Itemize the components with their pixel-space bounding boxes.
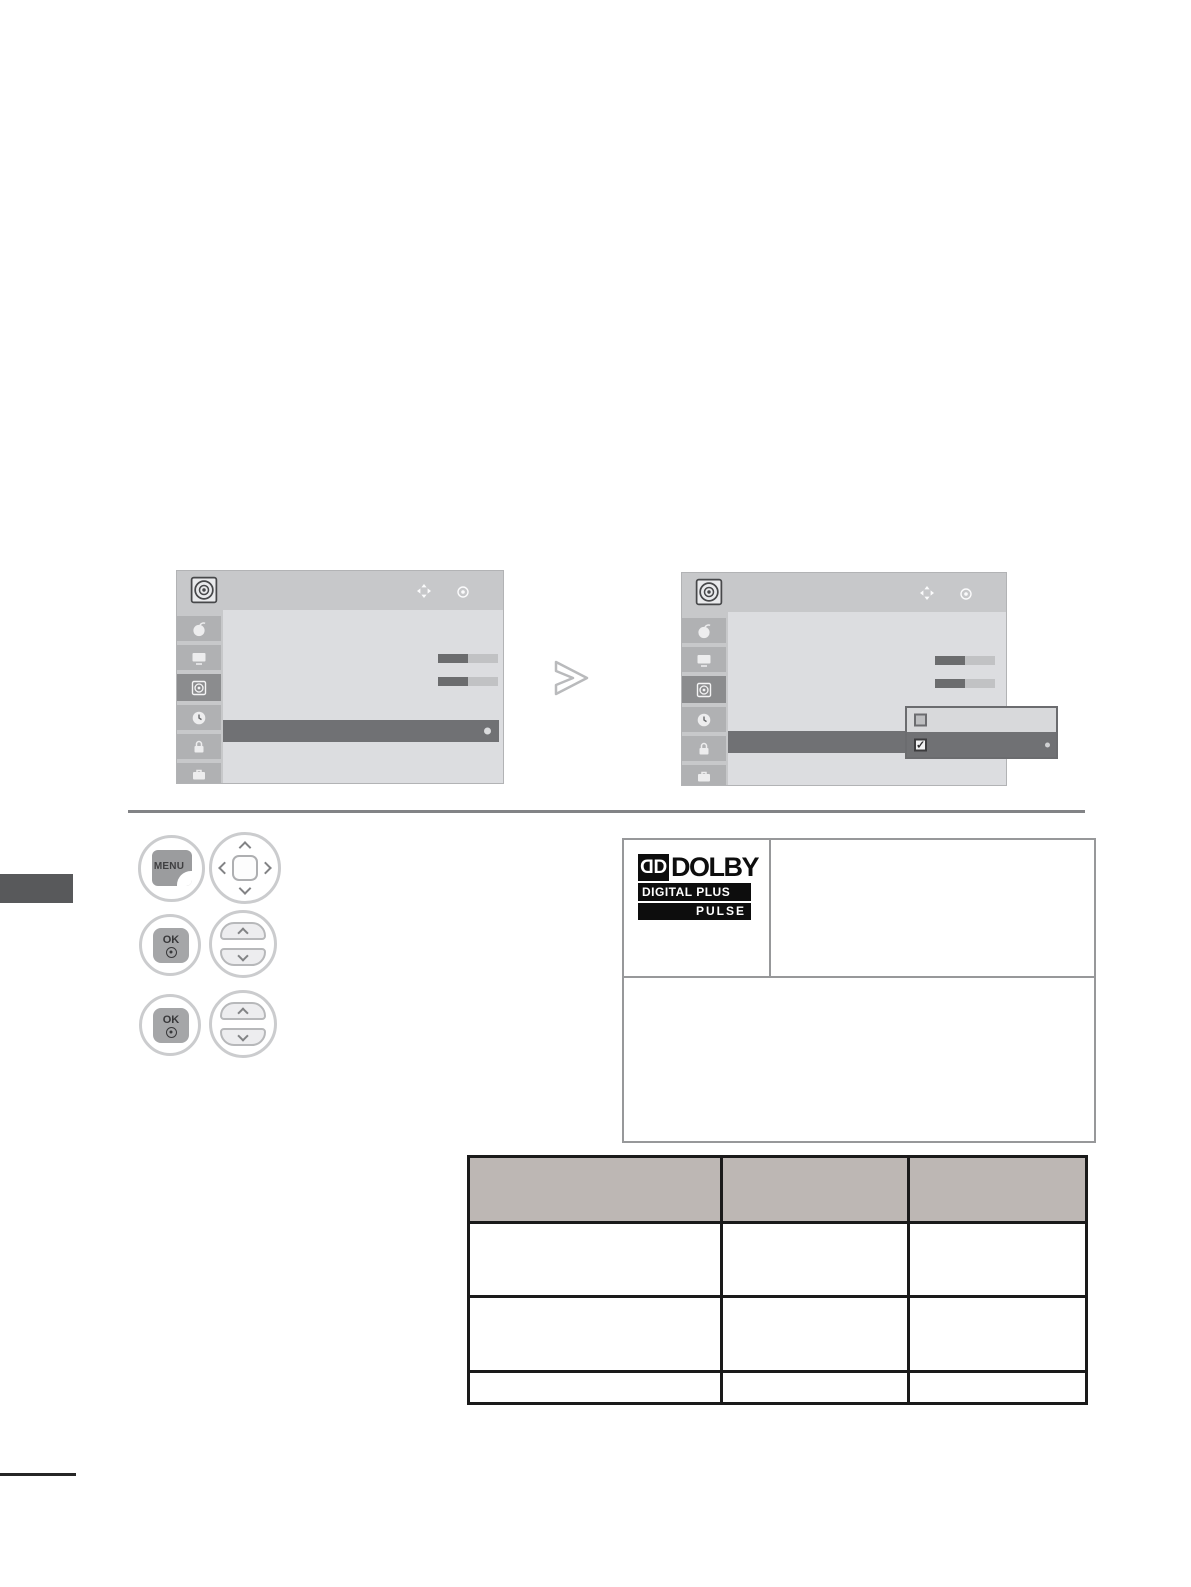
tv-audio-menu-screenshot-before (176, 570, 504, 784)
dolby-line2: DIGITAL PLUS (638, 883, 751, 901)
chevron-up-icon (237, 1007, 248, 1018)
sidebar-item-lock (177, 734, 221, 759)
dolby-line3: PULSE (638, 903, 751, 920)
sidebar-item-setup (682, 618, 726, 643)
audio-slider-1 (935, 656, 995, 665)
audio-icon (191, 680, 207, 696)
table-cell (910, 1224, 1085, 1298)
menu-body (223, 610, 503, 783)
ok-target-icon (166, 1027, 177, 1038)
audio-slider-2 (438, 677, 498, 686)
chapter-side-tab (0, 874, 73, 903)
chevron-up-icon (237, 927, 248, 938)
speaker-icon (190, 576, 218, 604)
section-divider-line (128, 810, 1085, 813)
picture-icon (696, 652, 712, 668)
table-cell (910, 1298, 1085, 1373)
table-cell (470, 1298, 723, 1373)
move-icon (417, 584, 431, 598)
chevron-right-icon (259, 862, 272, 875)
down-arrow-key (220, 1028, 266, 1046)
menu-header (682, 573, 1006, 612)
menu-button: MENU (138, 835, 205, 902)
time-icon (696, 712, 712, 728)
audio-icon (696, 682, 712, 698)
dd-right-glyph: D (654, 858, 666, 877)
option-icon (696, 768, 712, 784)
ok-key-shape: OK (153, 1008, 189, 1043)
page-footer-rule (0, 1473, 76, 1476)
up-arrow-key (220, 922, 266, 940)
sidebar-item-picture (177, 645, 221, 670)
slider-fill (438, 654, 468, 663)
table-cell (910, 1373, 1085, 1402)
dolby-info-box: D D DOLBY DIGITAL PLUS PULSE (622, 838, 1096, 978)
table-cell (723, 1224, 910, 1298)
sidebar-item-audio-active (177, 674, 221, 701)
table-header-cell (723, 1158, 910, 1224)
ok-button-2: OK (139, 994, 201, 1056)
slider-fill (935, 656, 965, 665)
option-popup: ✓ (905, 706, 1058, 759)
menu-header (177, 571, 503, 610)
chevron-up-icon (239, 841, 252, 854)
manual-page: ✓ MENU OK OK (0, 0, 1191, 1587)
ok-dot-icon (457, 585, 469, 597)
sidebar-item-picture (682, 647, 726, 672)
updown-buttons-1 (209, 910, 277, 978)
sidebar-item-audio-active (682, 676, 726, 703)
row-marker-dot (484, 728, 491, 735)
nav-pad (209, 832, 281, 904)
audio-slider-1 (438, 654, 498, 663)
table-cell (470, 1373, 723, 1402)
ok-button-label: OK (163, 934, 180, 946)
ok-target-icon (166, 947, 177, 958)
lock-icon (191, 739, 207, 755)
ok-button-1: OK (139, 914, 201, 976)
ok-dot-icon (960, 587, 972, 599)
setup-icon (696, 623, 712, 639)
popup-option-unchecked (907, 708, 1056, 732)
lock-icon (696, 741, 712, 757)
sidebar-item-time (177, 705, 221, 730)
sidebar-item-time (682, 707, 726, 732)
table-cell (723, 1373, 910, 1402)
box-divider (769, 840, 771, 976)
chevron-down-icon (237, 950, 248, 961)
chevron-down-icon (239, 882, 252, 895)
dolby-logo-row1: D D DOLBY (638, 853, 758, 881)
updown-buttons-2 (209, 990, 277, 1058)
checkbox-checked-icon: ✓ (914, 738, 927, 751)
selected-dot (1045, 742, 1050, 747)
dd-left-glyph: D (642, 858, 654, 877)
next-step-arrow-icon (549, 659, 593, 702)
chevron-down-icon (237, 1030, 248, 1041)
chevron-left-icon (218, 862, 231, 875)
setup-icon (191, 621, 207, 637)
ok-key-shape: OK (153, 928, 189, 963)
dolby-wordmark: DOLBY (671, 854, 758, 881)
note-box (622, 976, 1096, 1143)
double-d-icon: D D (638, 854, 669, 881)
table-cell (723, 1298, 910, 1373)
sidebar-item-setup (177, 616, 221, 641)
audio-format-table (467, 1155, 1088, 1405)
table-header-cell (910, 1158, 1085, 1224)
dolby-digital-plus-pulse-logo: D D DOLBY DIGITAL PLUS PULSE (638, 853, 758, 920)
up-arrow-key (220, 1002, 266, 1020)
menu-key-shape: MENU (152, 850, 192, 886)
sidebar-item-lock (682, 736, 726, 761)
table-header-cell (470, 1158, 723, 1224)
sidebar-item-option (682, 765, 726, 786)
time-icon (191, 710, 207, 726)
picture-icon (191, 650, 207, 666)
popup-option-checked-selected: ✓ (907, 732, 1056, 757)
slider-fill (438, 677, 468, 686)
menu-body (728, 612, 1006, 785)
menu-button-label: MENU (154, 861, 184, 872)
slider-fill (935, 679, 965, 688)
sidebar-item-option (177, 763, 221, 784)
selected-menu-row (223, 720, 499, 742)
audio-slider-2 (935, 679, 995, 688)
speaker-icon (695, 578, 723, 606)
down-arrow-key (220, 948, 266, 966)
move-icon (920, 586, 934, 600)
table-cell (470, 1224, 723, 1298)
option-icon (191, 766, 207, 782)
checkbox-unchecked-icon (914, 714, 927, 727)
ok-button-label: OK (163, 1014, 180, 1026)
nav-center-key (232, 855, 258, 881)
